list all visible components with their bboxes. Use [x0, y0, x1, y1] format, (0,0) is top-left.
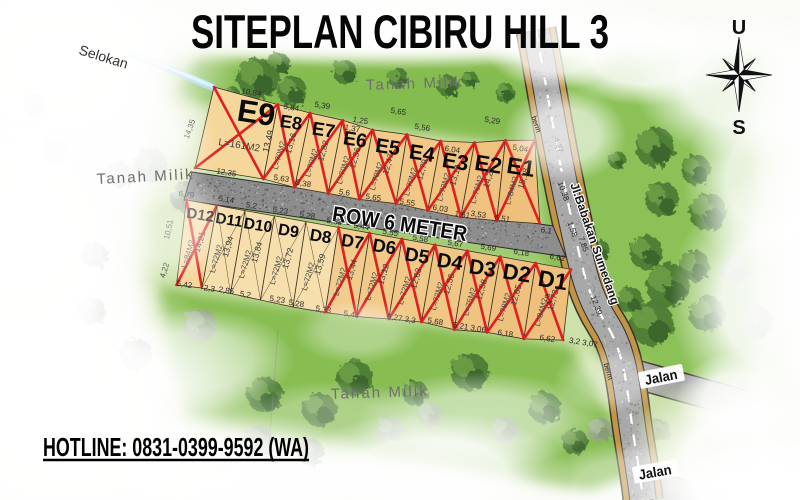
svg-text:D7: D7 — [340, 230, 366, 253]
svg-text:D8: D8 — [308, 225, 332, 247]
svg-text:5,2: 5,2 — [239, 289, 252, 300]
svg-text:Tanah Milik: Tanah Milik — [331, 383, 430, 403]
svg-text:D3: D3 — [467, 255, 497, 282]
svg-text:E8: E8 — [279, 111, 304, 134]
svg-text:HOTLINE: 0831-0399-9592 (WA): HOTLINE: 0831-0399-9592 (WA) — [43, 432, 309, 462]
svg-text:S: S — [732, 117, 745, 139]
svg-text:D2: D2 — [501, 259, 533, 288]
svg-text:5,2: 5,2 — [245, 200, 258, 211]
svg-text:E7: E7 — [311, 118, 337, 142]
svg-text:U: U — [732, 17, 746, 39]
svg-text:2,3: 2,3 — [203, 283, 216, 294]
svg-text:SITEPLAN CIBIRU HILL 3: SITEPLAN CIBIRU HILL 3 — [191, 6, 609, 59]
svg-text:6,1: 6,1 — [540, 225, 553, 236]
svg-text:Tanah Milik: Tanah Milik — [366, 74, 465, 94]
svg-text:D5: D5 — [403, 244, 431, 269]
svg-text:D6: D6 — [371, 234, 398, 258]
svg-text:E9: E9 — [235, 93, 278, 134]
svg-text:D9: D9 — [277, 221, 300, 242]
svg-text:D4: D4 — [435, 249, 465, 275]
svg-text:5,6: 5,6 — [338, 187, 351, 198]
